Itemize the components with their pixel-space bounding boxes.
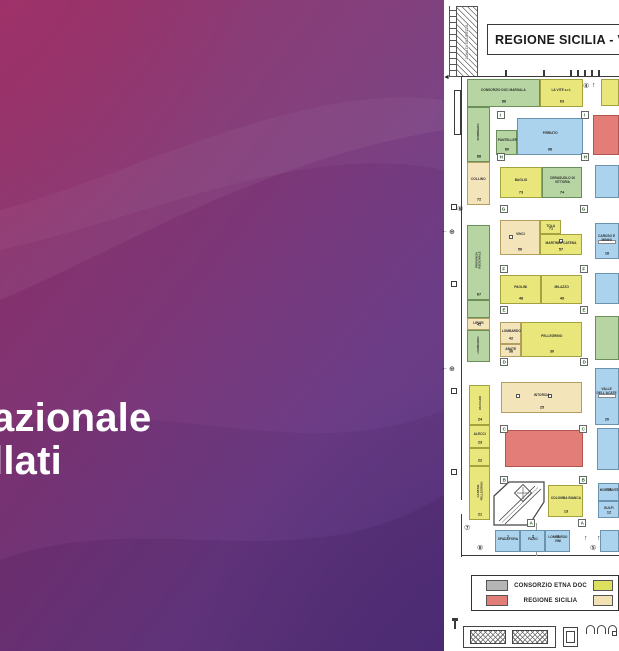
plan-symbol: ⑤ [590, 545, 596, 552]
symbols-layer: ④↑◄⑥←⊕←⊕⑦⑧↑↑⑤ [0, 0, 619, 651]
plan-symbol: ◄ [443, 74, 450, 81]
plan-symbol: ← [441, 228, 448, 235]
plan-symbol: ④ [583, 83, 589, 90]
plan-symbol: ⊕ [449, 229, 455, 236]
plan-symbol: ↑ [597, 535, 601, 542]
plan-symbol: ⑧ [477, 545, 483, 552]
plan-symbol: ← [441, 365, 448, 372]
plan-symbol: ⑥ [457, 206, 463, 213]
plan-symbol: ⑦ [464, 525, 470, 532]
plan-symbol: ↑ [592, 82, 596, 89]
plan-symbol: ⊕ [449, 366, 455, 373]
plan-symbol: ↑ [584, 535, 588, 542]
floor-plan: REGIONE SICILIA - V ZONA DI SICUREZZA [444, 0, 619, 651]
page: azionale llati REGIONE SICILIA - V ZONA … [0, 0, 619, 651]
